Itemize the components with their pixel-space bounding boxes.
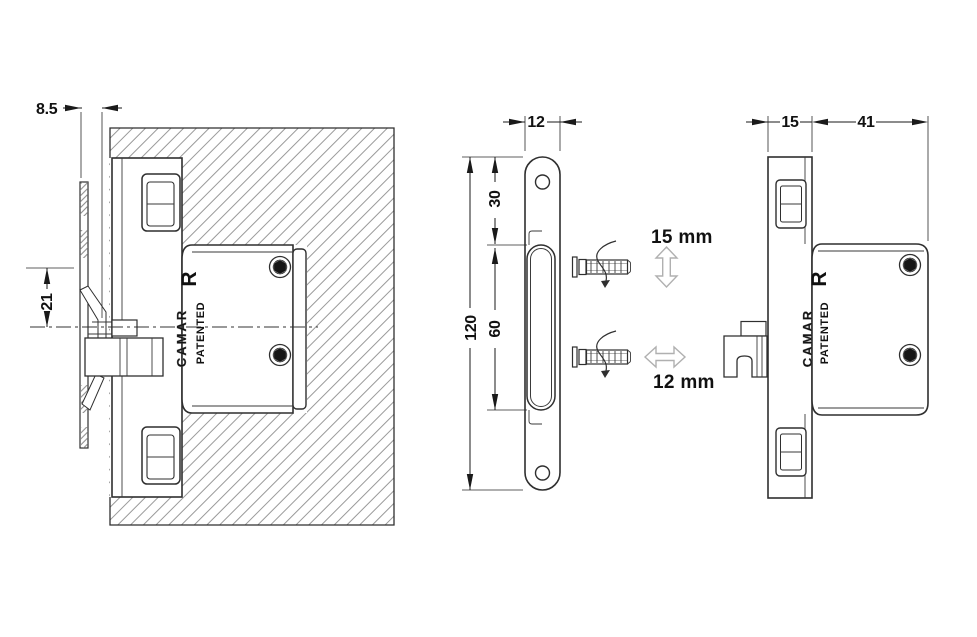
dim-housing-length: 41 bbox=[828, 114, 928, 241]
vertical-adjustment: 15 mm bbox=[651, 227, 713, 287]
dim-plate-width: 12 bbox=[503, 114, 582, 151]
plate-hatch-segment bbox=[80, 230, 88, 258]
horizontal-adjustment: 12 mm bbox=[645, 347, 715, 393]
adjusting-screw-bottom-icon bbox=[142, 427, 180, 484]
dim-body-depth-label: 15 bbox=[781, 114, 799, 131]
dim-plate-height-label: 120 bbox=[463, 315, 480, 341]
vertical-adjustment-label: 15 mm bbox=[651, 227, 713, 248]
dim-top-hole-label: 30 bbox=[487, 190, 504, 208]
double-arrow-horizontal-icon bbox=[645, 347, 685, 367]
wall-plate-section bbox=[80, 182, 112, 448]
brand-camar: CAMAR bbox=[800, 309, 815, 367]
bracket-end-plate bbox=[293, 249, 306, 409]
dim-housing-length-label: 41 bbox=[857, 114, 875, 131]
technical-drawing-page: R CAMAR PATENTED 8.5 21 bbox=[0, 0, 977, 637]
dim-slot: 60 bbox=[487, 245, 527, 410]
dim-offset-label: 8.5 bbox=[36, 101, 58, 118]
adjusting-screw-bottom-icon bbox=[776, 428, 806, 476]
plate-bottom-hole bbox=[536, 466, 550, 480]
brand-patented: PATENTED bbox=[195, 302, 207, 364]
hex-screw-top-icon bbox=[900, 255, 921, 276]
hex-screw-top-icon bbox=[270, 257, 291, 278]
dim-body-depth: 15 bbox=[746, 114, 828, 152]
wall-plate-hook bbox=[724, 322, 767, 378]
dim-top-hole: 30 bbox=[487, 157, 504, 244]
plate-top-hole bbox=[536, 175, 550, 189]
plate-front-view: 12 120 30 60 bbox=[462, 114, 715, 490]
dim-hook: 21 bbox=[26, 268, 74, 327]
plate-hatch-segment bbox=[80, 182, 88, 216]
hex-screw-bottom-icon bbox=[900, 345, 921, 366]
dim-hook-label: 21 bbox=[39, 293, 56, 311]
bracket-side-view: R CAMAR PATENTED 15 41 bbox=[724, 114, 928, 498]
hook-pin bbox=[112, 320, 137, 336]
screw-bottom-icon bbox=[573, 331, 631, 378]
section-view: R CAMAR PATENTED 8.5 21 bbox=[26, 101, 394, 525]
drawing-svg: R CAMAR PATENTED 8.5 21 bbox=[0, 0, 977, 637]
adjusting-screw-top-icon bbox=[776, 180, 806, 228]
adjusting-screw-top-icon bbox=[142, 174, 180, 231]
plate-hatch-segment bbox=[81, 427, 88, 448]
horizontal-adjustment-label: 12 mm bbox=[653, 372, 715, 393]
brand-patented: PATENTED bbox=[819, 302, 831, 364]
hook-block bbox=[85, 338, 163, 376]
logo-r: R bbox=[178, 271, 201, 286]
screw-top-icon bbox=[573, 241, 631, 288]
hex-screw-bottom-icon bbox=[270, 345, 291, 366]
brand-camar: CAMAR bbox=[174, 309, 189, 367]
plate-slot bbox=[527, 245, 555, 410]
double-arrow-vertical-icon bbox=[656, 247, 677, 287]
logo-r: R bbox=[808, 271, 831, 286]
dim-slot-label: 60 bbox=[487, 320, 504, 338]
dim-plate-width-label: 12 bbox=[527, 114, 545, 131]
